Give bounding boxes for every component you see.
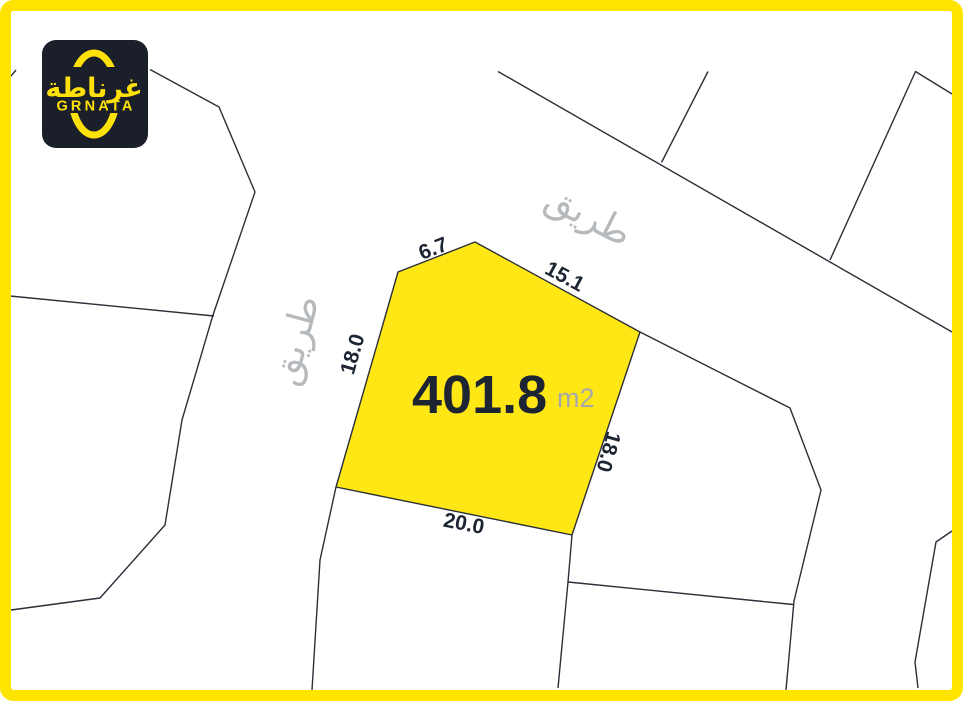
boundary-line-top-spur [662, 72, 709, 163]
plot-area-value: 401.8 [412, 365, 547, 425]
boundary-line-left-fragment [11, 70, 16, 76]
boundary-line-top-right-corner [830, 72, 952, 261]
boundary-line-far-right [915, 531, 952, 688]
boundary-line-bottom-horizontal [568, 582, 793, 605]
logo-latin-wordmark: GRNATA [56, 99, 135, 115]
road-label-top: طريق [538, 176, 639, 256]
dimension-left: 18.0 [336, 331, 369, 377]
boundary-line-bottom-center [558, 535, 572, 688]
boundary-line-left-horizontal [10, 296, 214, 316]
boundary-line-right-parcel [640, 332, 821, 690]
plot-area-unit: m2 [557, 383, 595, 413]
road-label-left: طريق [263, 291, 328, 390]
land-plot-poster: 6.7 15.1 18.0 18.0 20.0 401.8 m2 طريق طر… [0, 0, 963, 701]
cadastral-map: 6.7 15.1 18.0 18.0 20.0 401.8 m2 طريق طر… [0, 0, 963, 701]
boundary-line-below-plot [312, 487, 336, 690]
boundary-line-left-parcel [11, 70, 255, 611]
grnata-logo: غرناطة GRNATA [42, 40, 148, 148]
